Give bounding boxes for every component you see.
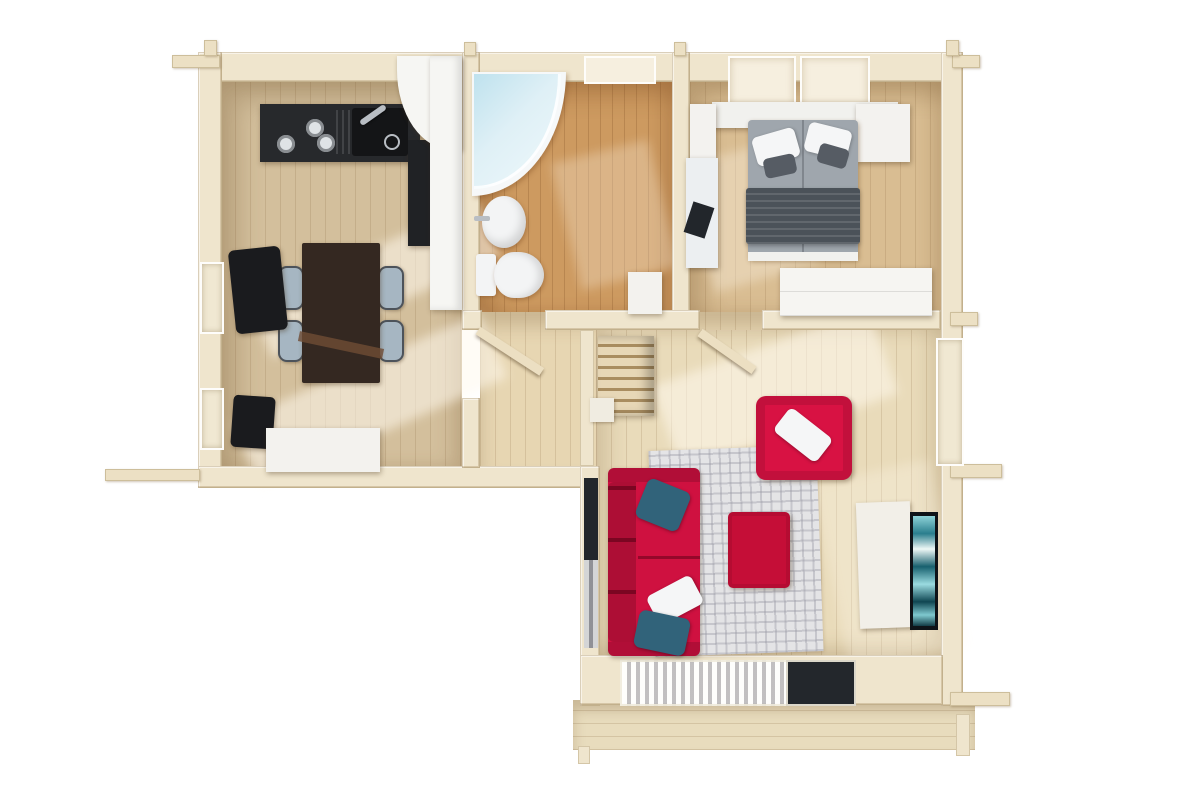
post-top-kitchen-wall (464, 42, 476, 56)
terrace-deck (573, 700, 975, 750)
dining-chair-top-right (378, 266, 404, 310)
log-end-bottom-left (105, 469, 200, 481)
wall-dining-hallway-lower (462, 398, 480, 468)
floorplan-render (0, 0, 1200, 800)
hob-burner-1 (277, 135, 295, 153)
log-end-top-left (172, 55, 220, 68)
terrace-post-right (956, 714, 970, 756)
oven-tower (408, 140, 430, 246)
nightstand-left (690, 104, 716, 158)
tv-screen (913, 516, 935, 626)
sink-drain (384, 134, 400, 150)
bed-blanket (746, 188, 860, 244)
log-end-right-mid (950, 312, 978, 326)
wall-hallway-north-b (545, 310, 700, 330)
window-living-east (936, 338, 964, 466)
fridge-cabinet-column (430, 56, 462, 310)
post-top-corner-right (946, 40, 959, 56)
curtain-living-south (620, 660, 788, 706)
window-living-south-dark (786, 660, 856, 706)
washbasin (482, 196, 526, 248)
basin-tap (474, 216, 490, 221)
tv-sideboard (856, 501, 914, 629)
log-end-top-right (952, 55, 980, 68)
log-end-right-living (950, 464, 1002, 478)
skylight-bedroom-1 (728, 56, 796, 106)
curtain-living-west (584, 560, 598, 648)
kitchen-sink (352, 108, 408, 156)
window-west-1 (200, 262, 224, 334)
window-west-2 (200, 388, 224, 450)
skylight-bedroom-2 (800, 56, 870, 106)
wardrobe-right (856, 104, 910, 162)
bedroom-dresser (780, 268, 932, 316)
wall-south-dining (198, 466, 600, 488)
ottoman (728, 512, 790, 588)
sofa-backrest (608, 482, 636, 642)
log-end-bottom-right (950, 692, 1010, 706)
post-top-bedroom-wall (674, 42, 686, 56)
storage-chest (266, 428, 380, 472)
bathroom-cabinet (628, 272, 662, 314)
window-bathroom-north (584, 56, 656, 84)
black-window-chair-1 (228, 246, 288, 335)
toilet-cistern (476, 254, 496, 296)
post-top-corner-left (204, 40, 217, 56)
hob-burner-3 (317, 134, 335, 152)
toilet-bowl (494, 252, 544, 298)
terrace-post-left (578, 746, 590, 764)
sofa-seat-seam (638, 556, 700, 559)
bed-footboard (748, 252, 858, 261)
stair-landing (590, 398, 614, 422)
dining-table (302, 243, 380, 383)
